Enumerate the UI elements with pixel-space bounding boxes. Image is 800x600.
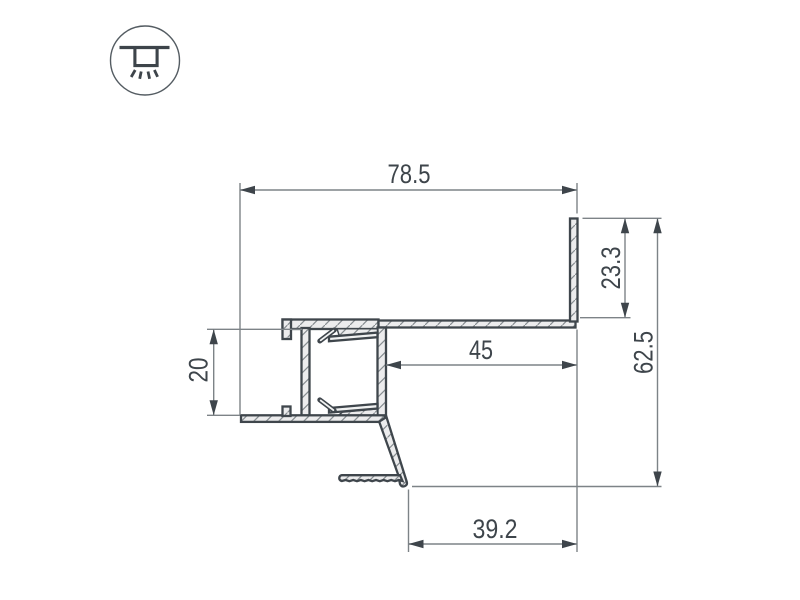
- svg-text:20: 20: [184, 358, 214, 383]
- svg-text:39.2: 39.2: [473, 514, 518, 544]
- svg-text:62.5: 62.5: [629, 331, 659, 374]
- svg-text:23.3: 23.3: [596, 247, 626, 290]
- svg-text:45: 45: [469, 335, 493, 365]
- svg-text:78.5: 78.5: [388, 159, 431, 189]
